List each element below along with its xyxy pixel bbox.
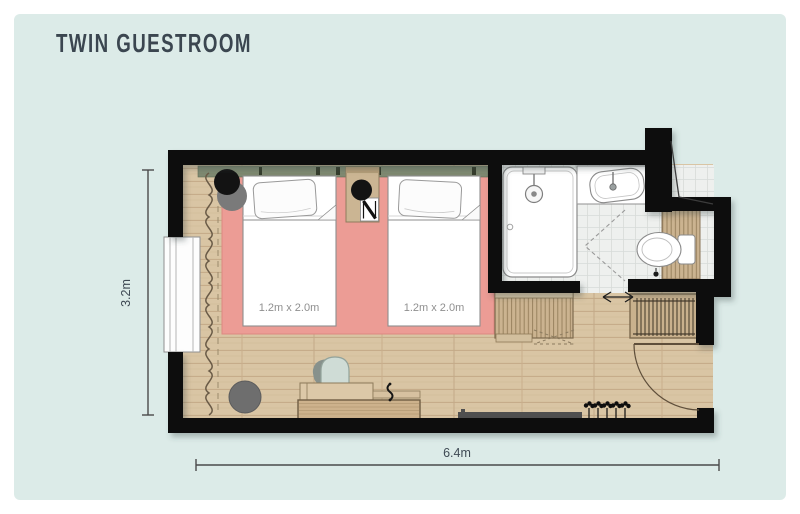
twin-bed-right: 1.2m x 2.0m: [388, 176, 480, 326]
window: [164, 237, 200, 352]
pillow: [253, 179, 317, 219]
pillow: [398, 179, 462, 218]
bench-luggage-rack: [495, 292, 574, 344]
floorplan-drawing: 1.2m x 2.0m 1.2m x 2.0m: [0, 0, 800, 514]
dimension-horizontal: [196, 459, 719, 471]
dimension-label-horizontal: 6.4m: [443, 446, 471, 460]
twin-bed-left: 1.2m x 2.0m: [243, 176, 336, 326]
dimension-label-vertical: 3.2m: [119, 279, 133, 307]
sink-counter: [577, 166, 652, 204]
pouf: [229, 381, 261, 413]
nightstand: [346, 167, 379, 222]
bed-size-label-left: 1.2m x 2.0m: [259, 302, 320, 314]
bed-size-label-right: 1.2m x 2.0m: [404, 302, 465, 314]
faucet-icon: [610, 184, 616, 190]
table-lamp: [351, 180, 372, 201]
shower-tub: [503, 167, 577, 277]
headboard-panel: [198, 166, 488, 177]
dimension-vertical: [142, 170, 154, 415]
floorplan-page: TWIN GUESTROOM: [0, 0, 800, 514]
